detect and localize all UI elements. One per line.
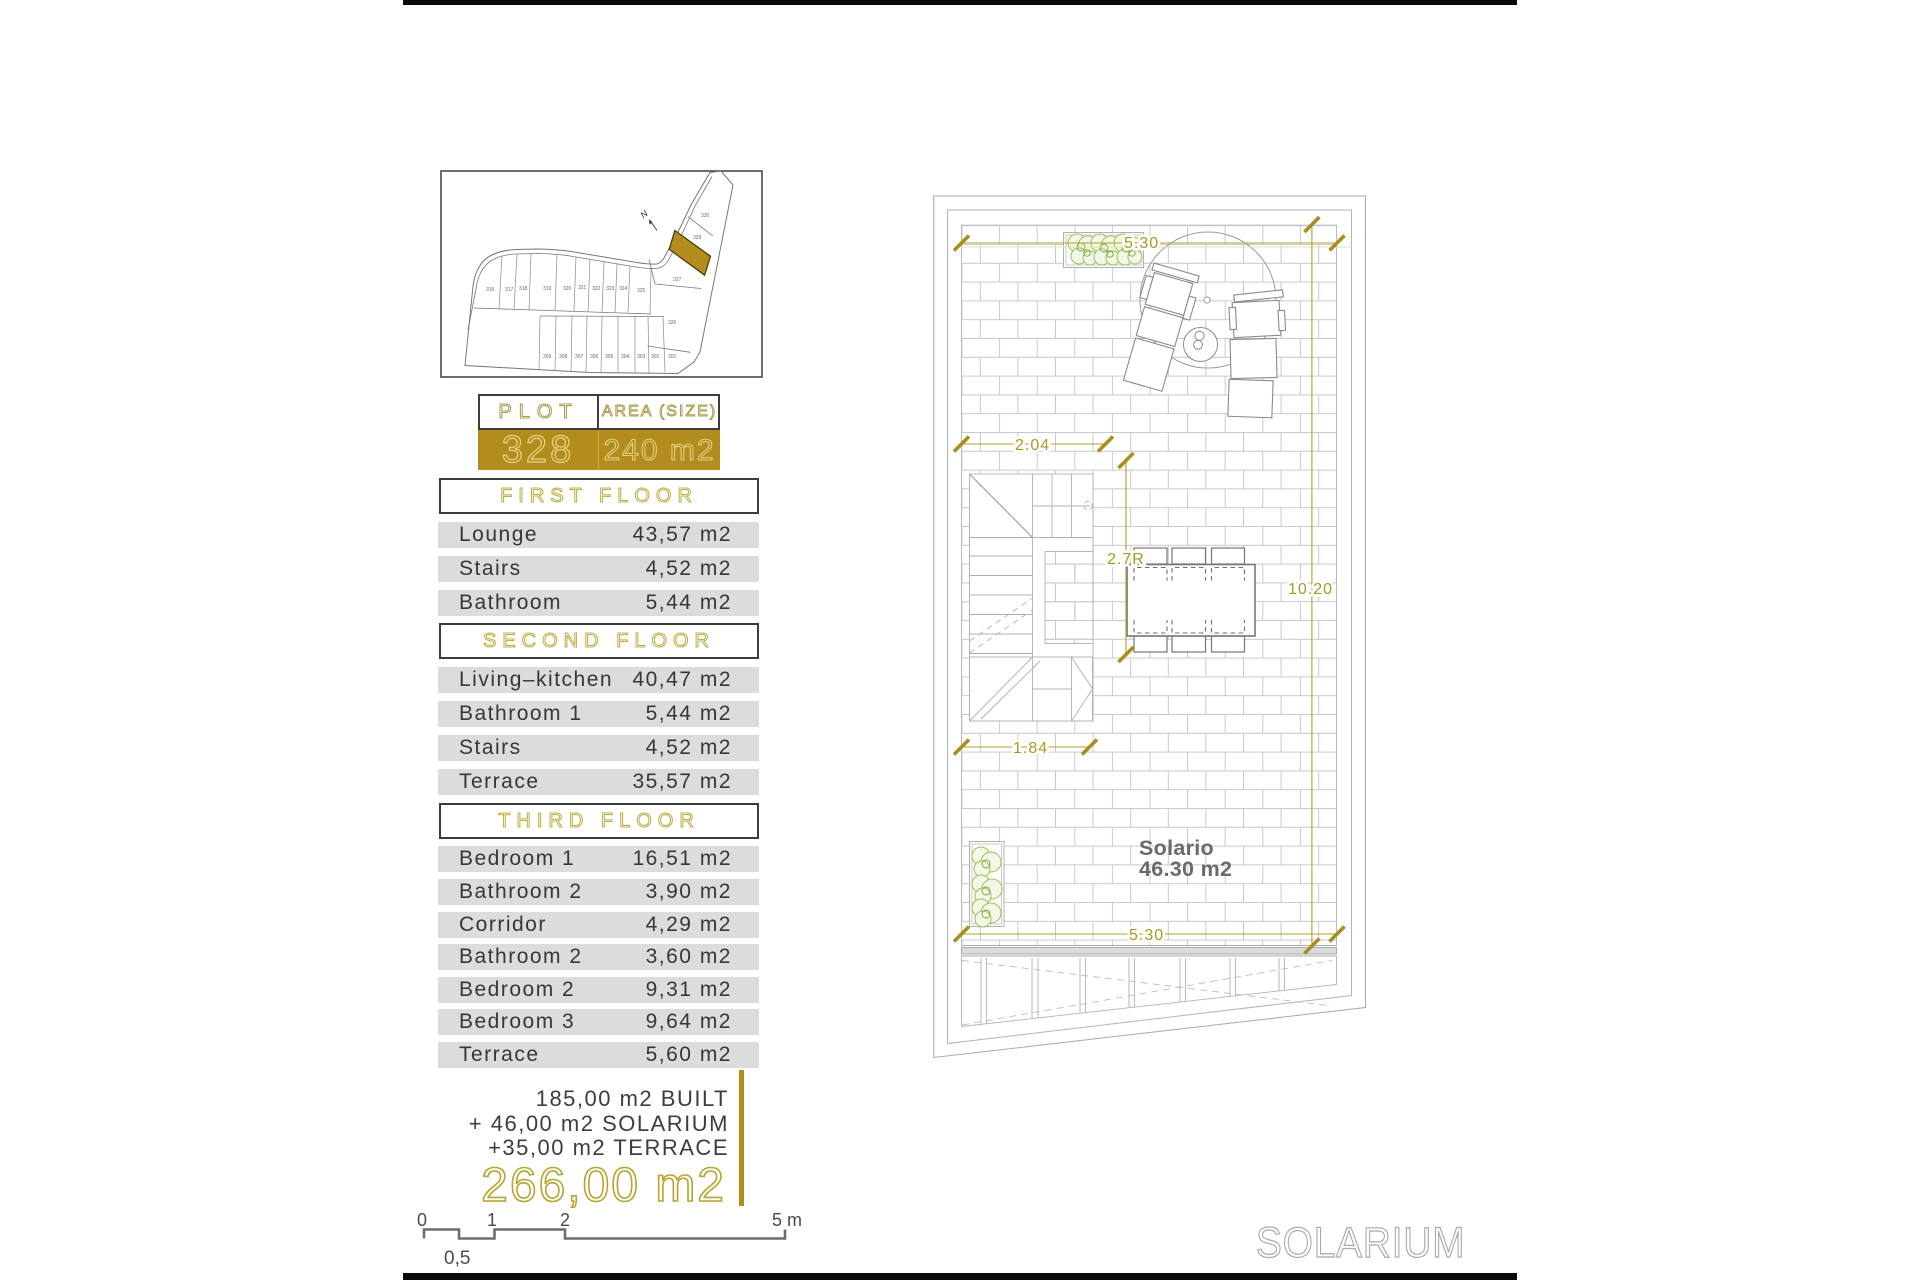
svg-text:322: 322 bbox=[592, 286, 601, 292]
svg-text:5.30: 5.30 bbox=[1129, 927, 1164, 944]
svg-text:329: 329 bbox=[693, 235, 702, 241]
svg-text:309: 309 bbox=[543, 354, 552, 360]
svg-text:326: 326 bbox=[668, 320, 677, 326]
svg-text:2.04: 2.04 bbox=[1015, 437, 1050, 454]
svg-text:318: 318 bbox=[519, 286, 528, 292]
svg-text:5.30: 5.30 bbox=[1124, 235, 1159, 252]
svg-text:327: 327 bbox=[673, 277, 682, 283]
svg-text:325: 325 bbox=[637, 288, 646, 294]
svg-text:330: 330 bbox=[701, 213, 710, 219]
svg-text:323: 323 bbox=[606, 286, 615, 292]
svg-text:2.7R: 2.7R bbox=[1107, 551, 1145, 568]
svg-text:301: 301 bbox=[668, 354, 677, 360]
svg-text:2: 2 bbox=[560, 1210, 570, 1230]
svg-text:324: 324 bbox=[619, 286, 628, 292]
svg-text:5 m: 5 m bbox=[772, 1210, 802, 1230]
svg-text:302: 302 bbox=[651, 354, 660, 360]
svg-text:320: 320 bbox=[563, 286, 572, 292]
svg-text:307: 307 bbox=[575, 354, 584, 360]
svg-text:46.30 m2: 46.30 m2 bbox=[1139, 857, 1232, 881]
svg-text:319: 319 bbox=[543, 286, 552, 292]
svg-text:304: 304 bbox=[621, 354, 630, 360]
svg-text:317: 317 bbox=[505, 287, 514, 293]
svg-text:308: 308 bbox=[559, 354, 568, 360]
svg-text:0: 0 bbox=[417, 1210, 427, 1230]
svg-text:10.20: 10.20 bbox=[1288, 581, 1333, 598]
svg-text:1.84: 1.84 bbox=[1013, 740, 1048, 757]
svg-text:316: 316 bbox=[486, 287, 495, 293]
svg-text:321: 321 bbox=[578, 285, 587, 291]
svg-text:303: 303 bbox=[637, 354, 646, 360]
svg-text:306: 306 bbox=[590, 354, 599, 360]
svg-text:1: 1 bbox=[487, 1210, 497, 1230]
svg-text:0,5: 0,5 bbox=[444, 1248, 470, 1269]
svg-text:305: 305 bbox=[605, 354, 614, 360]
